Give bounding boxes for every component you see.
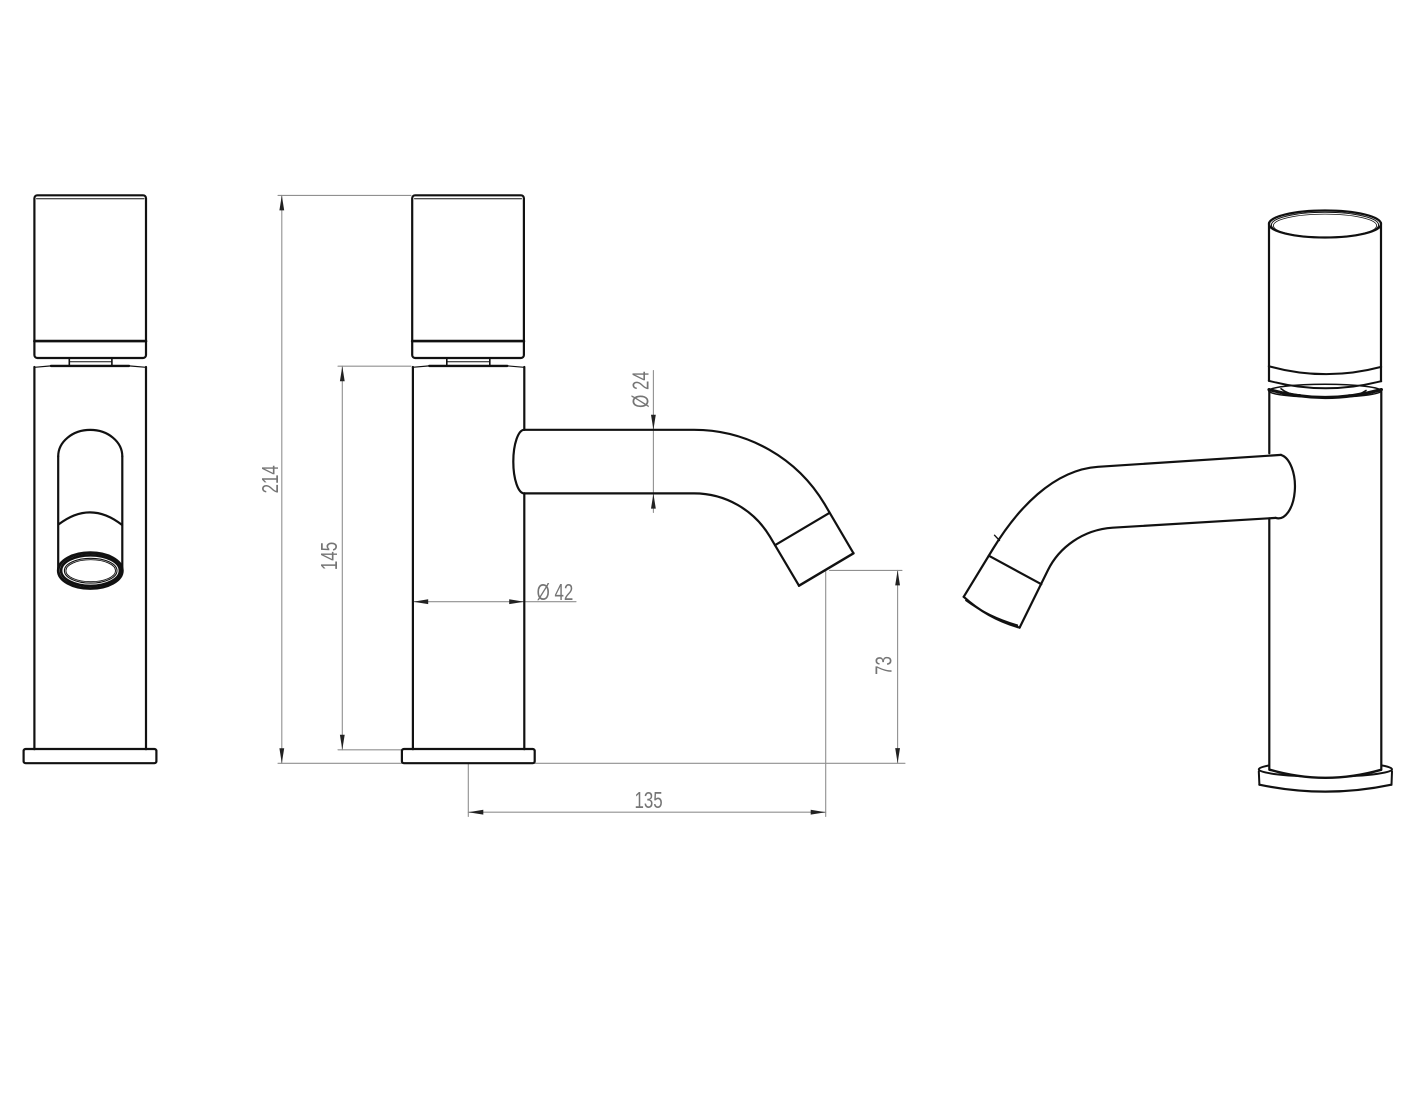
svg-text:73: 73 xyxy=(871,656,897,675)
svg-text:Ø 24: Ø 24 xyxy=(628,371,654,408)
svg-text:214: 214 xyxy=(257,465,283,493)
svg-text:Ø 42: Ø 42 xyxy=(537,579,574,605)
svg-text:135: 135 xyxy=(634,787,662,813)
svg-text:145: 145 xyxy=(316,542,342,570)
